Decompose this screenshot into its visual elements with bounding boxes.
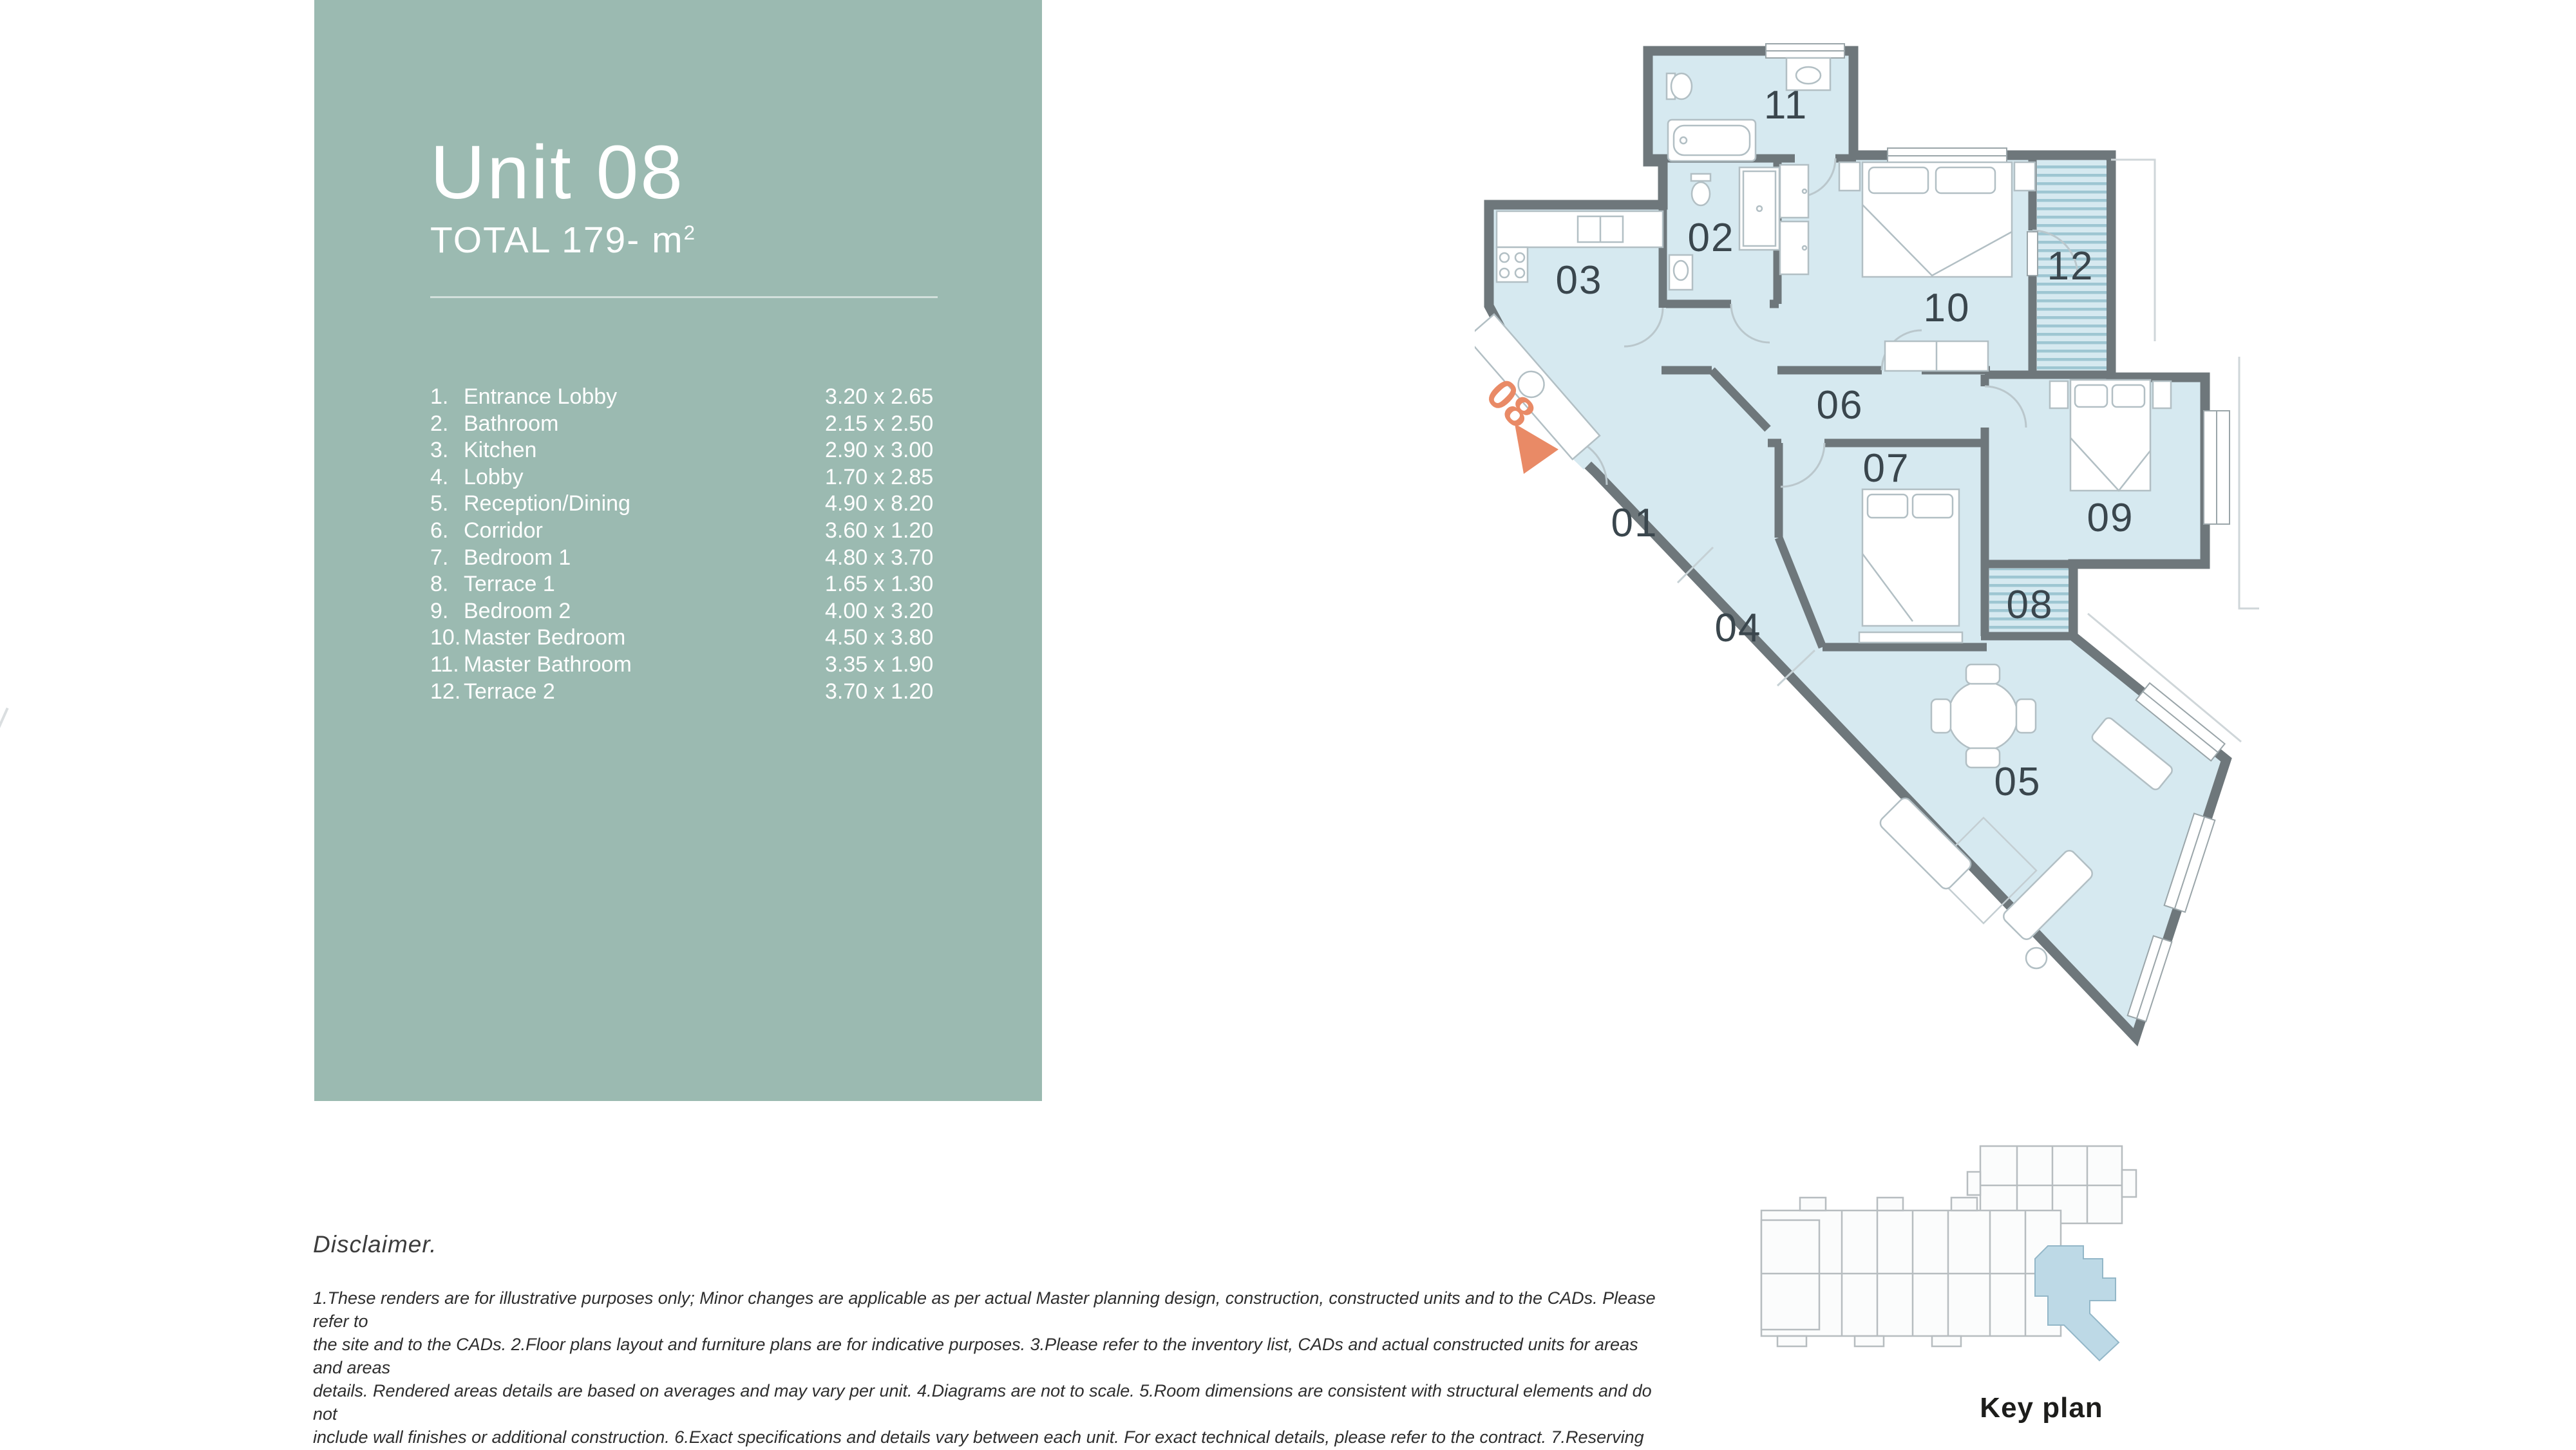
room-dimensions: 4.50 x 3.80 bbox=[825, 625, 933, 652]
room-name: Lobby bbox=[464, 465, 524, 489]
room-number: 11. bbox=[430, 652, 464, 679]
room-label-06: 06 bbox=[1817, 383, 1864, 428]
room-label-04: 04 bbox=[1715, 606, 1762, 650]
room-name: Terrace 2 bbox=[464, 679, 555, 704]
room-list-item: 4.Lobby1.70 x 2.85 bbox=[430, 464, 1010, 491]
room-name: Terrace 1 bbox=[464, 572, 555, 596]
room-number: 8. bbox=[430, 571, 464, 598]
room-dimensions: 3.60 x 1.20 bbox=[825, 518, 933, 545]
room-list: 1.Entrance Lobby3.20 x 2.65 2.Bathroom2.… bbox=[430, 384, 1010, 705]
page-edge-mark bbox=[0, 708, 9, 731]
room-label-03: 03 bbox=[1556, 258, 1603, 303]
room-dimensions: 3.70 x 1.20 bbox=[825, 679, 933, 706]
room-list-item: 11.Master Bathroom3.35 x 1.90 bbox=[430, 652, 1010, 679]
room-list-item: 8.Terrace 11.65 x 1.30 bbox=[430, 571, 1010, 598]
room-list-item: 9.Bedroom 24.00 x 3.20 bbox=[430, 598, 1010, 625]
key-plan-caption: Key plan bbox=[1945, 1392, 2138, 1424]
room-name: Reception/Dining bbox=[464, 491, 630, 516]
disclaimer-line: the site and to the CADs. 2.Floor plans … bbox=[313, 1333, 1665, 1379]
room-dimensions: 3.35 x 1.90 bbox=[825, 652, 933, 679]
disclaimer-line: 1.These renders are for illustrative pur… bbox=[313, 1286, 1665, 1333]
room-number: 9. bbox=[430, 598, 464, 625]
room-name: Master Bathroom bbox=[464, 652, 632, 677]
room-number: 6. bbox=[430, 518, 464, 545]
room-list-item: 10.Master Bedroom4.50 x 3.80 bbox=[430, 625, 1010, 652]
room-label-01: 01 bbox=[1611, 501, 1658, 545]
room-name: Corridor bbox=[464, 518, 543, 543]
room-name: Bathroom bbox=[464, 411, 558, 436]
key-plan-highlight-unit bbox=[2035, 1246, 2119, 1361]
room-number: 1. bbox=[430, 384, 464, 411]
room-list-item: 12.Terrace 23.70 x 1.20 bbox=[430, 679, 1010, 706]
room-list-item: 1.Entrance Lobby3.20 x 2.65 bbox=[430, 384, 1010, 411]
room-name: Bedroom 2 bbox=[464, 599, 571, 623]
room-number: 4. bbox=[430, 464, 464, 491]
room-dimensions: 3.20 x 2.65 bbox=[825, 384, 933, 411]
total-area-text: TOTAL 179- m bbox=[430, 220, 684, 261]
disclaimer-heading: Disclaimer. bbox=[313, 1231, 437, 1258]
room-name: Master Bedroom bbox=[464, 625, 625, 650]
room-label-05: 05 bbox=[1994, 760, 2041, 804]
room-label-12: 12 bbox=[2047, 244, 2094, 288]
unit-outline bbox=[1489, 51, 2226, 1037]
room-dimensions: 2.15 x 2.50 bbox=[825, 411, 933, 438]
room-label-07: 07 bbox=[1863, 446, 1910, 491]
room-number: 10. bbox=[430, 625, 464, 652]
total-area: TOTAL 179- m2 bbox=[430, 219, 696, 261]
room-dimensions: 4.90 x 8.20 bbox=[825, 491, 933, 518]
room-label-02: 02 bbox=[1688, 216, 1735, 260]
room-number: 2. bbox=[430, 411, 464, 438]
room-number: 12. bbox=[430, 679, 464, 706]
room-dimensions: 1.70 x 2.85 bbox=[825, 464, 933, 491]
key-plan bbox=[1739, 1136, 2164, 1388]
room-label-11: 11 bbox=[1764, 83, 1808, 127]
room-dimensions: 1.65 x 1.30 bbox=[825, 571, 933, 598]
brochure-page: Unit 08 TOTAL 179- m2 1.Entrance Lobby3.… bbox=[0, 0, 2576, 1450]
room-label-08: 08 bbox=[2007, 583, 2054, 627]
room-name: Entrance Lobby bbox=[464, 384, 617, 409]
room-name: Bedroom 1 bbox=[464, 545, 571, 570]
disclaimer-line: details. Rendered areas details are base… bbox=[313, 1379, 1665, 1426]
divider-line bbox=[430, 296, 938, 298]
room-list-item: 7.Bedroom 14.80 x 3.70 bbox=[430, 545, 1010, 572]
room-dimensions: 2.90 x 3.00 bbox=[825, 437, 933, 464]
room-label-10: 10 bbox=[1924, 286, 1971, 330]
room-list-item: 6.Corridor3.60 x 1.20 bbox=[430, 518, 1010, 545]
room-label-09: 09 bbox=[2087, 496, 2134, 540]
room-number: 5. bbox=[430, 491, 464, 518]
room-list-item: 3.Kitchen2.90 x 3.00 bbox=[430, 437, 1010, 464]
floor-plan: 01 02 03 04 05 06 07 08 09 10 11 12 08 bbox=[1475, 39, 2260, 1056]
room-dimensions: 4.80 x 3.70 bbox=[825, 545, 933, 572]
room-dimensions: 4.00 x 3.20 bbox=[825, 598, 933, 625]
room-number: 7. bbox=[430, 545, 464, 572]
disclaimer-line: include wall finishes or additional cons… bbox=[313, 1426, 1665, 1450]
disclaimer-text: 1.These renders are for illustrative pur… bbox=[313, 1286, 1665, 1450]
room-name: Kitchen bbox=[464, 438, 536, 462]
room-list-item: 5.Reception/Dining4.90 x 8.20 bbox=[430, 491, 1010, 518]
page-title: Unit 08 bbox=[430, 129, 685, 216]
total-area-sup: 2 bbox=[684, 221, 696, 244]
room-list-item: 2.Bathroom2.15 x 2.50 bbox=[430, 411, 1010, 438]
unit-info-panel: Unit 08 TOTAL 179- m2 1.Entrance Lobby3.… bbox=[314, 0, 1042, 1101]
room-number: 3. bbox=[430, 437, 464, 464]
